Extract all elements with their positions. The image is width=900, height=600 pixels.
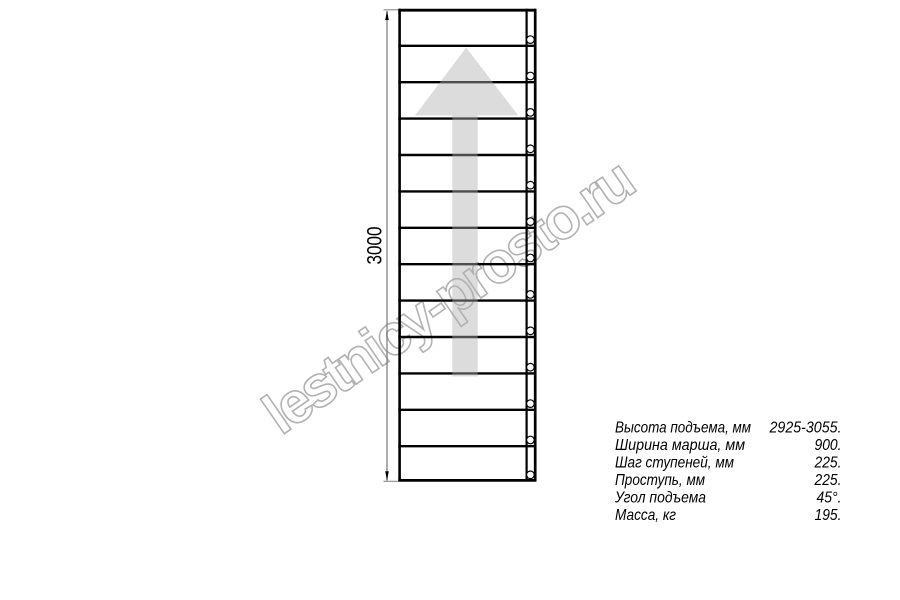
svg-text:900.: 900. bbox=[815, 437, 842, 454]
svg-text:3000: 3000 bbox=[364, 227, 387, 265]
svg-text:Масса, кг: Масса, кг bbox=[615, 507, 676, 524]
svg-text:Угол подъема: Угол подъема bbox=[614, 489, 706, 506]
svg-text:225.: 225. bbox=[814, 454, 842, 471]
svg-text:2925-3055.: 2925-3055. bbox=[769, 419, 842, 436]
svg-text:225.: 225. bbox=[814, 472, 842, 489]
svg-text:Шаг ступеней, мм: Шаг ступеней, мм bbox=[615, 454, 734, 471]
svg-text:Высота подъема, мм: Высота подъема, мм bbox=[615, 419, 751, 436]
svg-text:45°.: 45°. bbox=[817, 489, 842, 506]
svg-text:Ширина марша, мм: Ширина марша, мм bbox=[615, 437, 745, 454]
svg-text:195.: 195. bbox=[815, 507, 842, 524]
svg-text:Проступь, мм: Проступь, мм bbox=[615, 472, 705, 489]
